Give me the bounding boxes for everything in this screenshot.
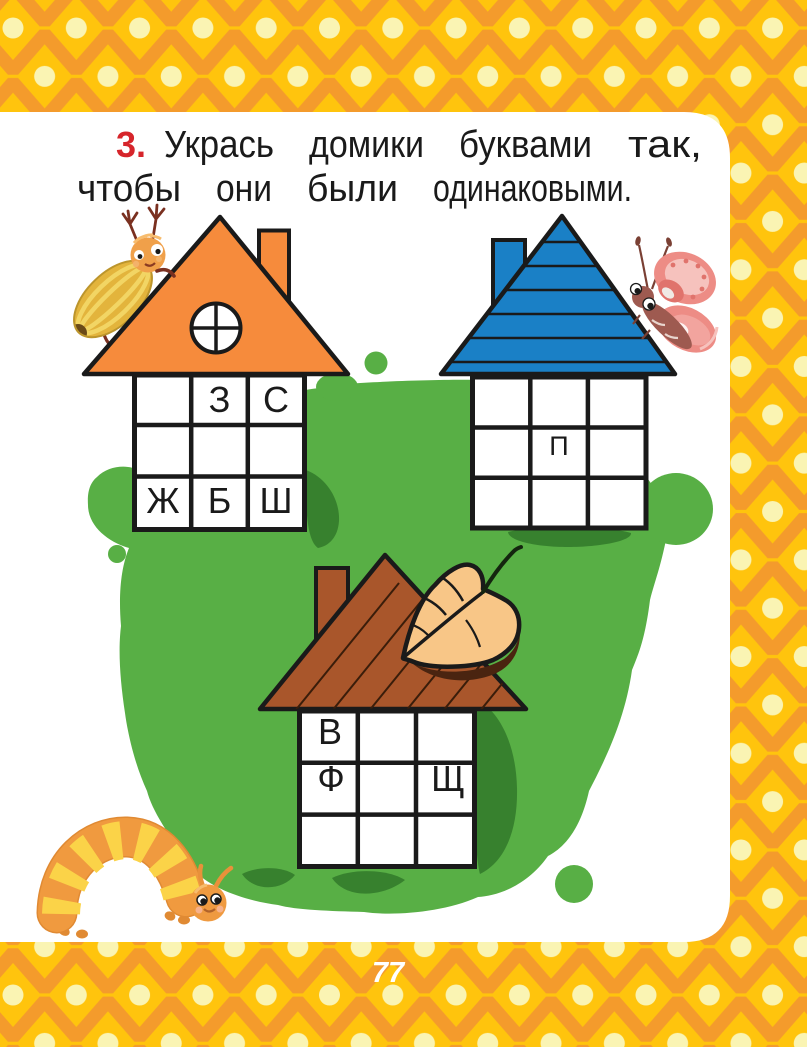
svg-text:Укрась: Укрась: [164, 124, 274, 166]
svg-text:77: 77: [372, 957, 406, 989]
svg-text:одинаковыми.: одинаковыми.: [433, 168, 632, 210]
svg-text:П: П: [549, 431, 568, 461]
svg-text:Ф: Ф: [317, 758, 344, 799]
svg-text:Б: Б: [208, 480, 232, 521]
svg-text:домики: домики: [309, 124, 424, 166]
svg-text:так,: так,: [628, 124, 702, 166]
svg-text:они: они: [216, 168, 272, 210]
svg-text:Ж: Ж: [146, 480, 179, 521]
svg-text:были: были: [307, 168, 398, 210]
svg-text:чтобы: чтобы: [77, 168, 181, 210]
svg-text:В: В: [318, 711, 342, 752]
svg-text:буквами: буквами: [459, 124, 592, 166]
svg-text:Щ: Щ: [431, 758, 465, 799]
svg-text:3.: 3.: [116, 124, 146, 165]
svg-text:С: С: [263, 379, 289, 420]
svg-text:З: З: [209, 379, 231, 420]
svg-text:Ш: Ш: [260, 480, 293, 521]
